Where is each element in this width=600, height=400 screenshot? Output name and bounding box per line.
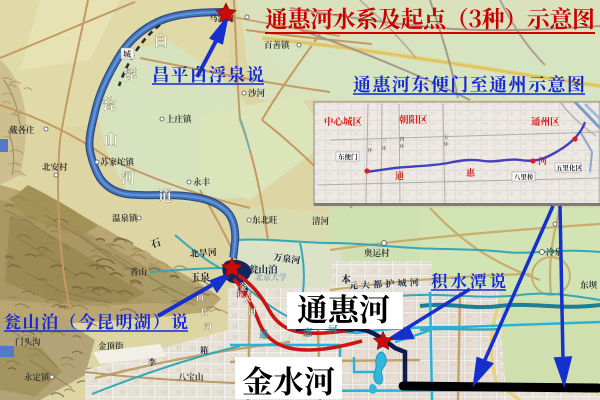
svg-text:朝阳区: 朝阳区 xyxy=(399,112,428,126)
svg-text:瓮山泊: 瓮山泊 xyxy=(249,262,278,276)
svg-text:奥运村: 奥运村 xyxy=(364,247,390,259)
svg-text:李: 李 xyxy=(148,357,156,368)
svg-text:百善镇: 百善镇 xyxy=(264,39,291,51)
svg-text:苏家坨镇: 苏家坨镇 xyxy=(100,156,136,168)
svg-text:八里桥: 八里桥 xyxy=(514,172,534,181)
svg-text:水: 水 xyxy=(243,294,251,305)
svg-text:白: 白 xyxy=(154,31,168,51)
svg-text:箱: 箱 xyxy=(200,345,208,356)
svg-text:香山: 香山 xyxy=(130,266,147,278)
svg-text:通州区: 通州区 xyxy=(531,114,560,128)
svg-text:清河: 清河 xyxy=(312,215,330,227)
svg-text:五环: 五环 xyxy=(442,134,450,148)
svg-text:东北旺: 东北旺 xyxy=(252,214,278,226)
svg-text:上庄镇: 上庄镇 xyxy=(166,113,193,125)
svg-text:惠: 惠 xyxy=(466,166,476,179)
svg-text:玉泉: 玉泉 xyxy=(190,269,210,284)
svg-text:八宝山: 八宝山 xyxy=(178,371,204,383)
svg-text:二环: 二环 xyxy=(366,140,374,154)
svg-text:戴各庄: 戴各庄 xyxy=(9,124,35,136)
svg-text:河: 河 xyxy=(121,168,135,188)
svg-text:通惠河水系及起点（3种）示意图: 通惠河水系及起点（3种）示意图 xyxy=(265,1,595,34)
svg-text:五里化区: 五里化区 xyxy=(556,163,583,172)
svg-text:河: 河 xyxy=(538,154,547,167)
svg-text:城: 城 xyxy=(123,49,131,60)
svg-text:通惠河: 通惠河 xyxy=(297,285,390,330)
svg-text:山: 山 xyxy=(104,130,118,150)
svg-text:东坝: 东坝 xyxy=(580,279,599,291)
svg-text:门头沟: 门头沟 xyxy=(15,336,41,348)
svg-text:惠: 惠 xyxy=(303,325,314,339)
svg-text:通: 通 xyxy=(395,169,404,182)
svg-text:四环: 四环 xyxy=(398,136,406,150)
svg-text:瓮山泊（今昆明湖）说: 瓮山泊（今昆明湖）说 xyxy=(4,308,188,333)
svg-text:通: 通 xyxy=(259,327,269,341)
svg-text:金水河: 金水河 xyxy=(242,357,335,400)
svg-text:三环: 三环 xyxy=(380,138,388,152)
svg-text:永丰: 永丰 xyxy=(193,176,211,188)
svg-text:长: 长 xyxy=(200,307,208,318)
svg-text:永定镇: 永定镇 xyxy=(24,371,51,383)
svg-text:昌平白浮泉说: 昌平白浮泉说 xyxy=(152,62,264,87)
svg-text:浮: 浮 xyxy=(123,65,137,85)
svg-text:温泉镇: 温泉镇 xyxy=(112,212,139,224)
svg-text:沙河: 沙河 xyxy=(248,87,266,99)
svg-text:河: 河 xyxy=(204,322,212,333)
svg-text:北安村: 北安村 xyxy=(42,161,68,173)
svg-text:河: 河 xyxy=(248,306,256,317)
svg-text:中心城区: 中心城区 xyxy=(324,114,363,128)
svg-text:瓮: 瓮 xyxy=(102,94,116,114)
svg-text:金: 金 xyxy=(239,282,247,293)
svg-text:道: 道 xyxy=(158,186,172,206)
svg-text:通惠河东便门至通州示意图: 通惠河东便门至通州示意图 xyxy=(353,71,585,97)
svg-text:东便门: 东便门 xyxy=(338,152,358,161)
svg-text:北旱河: 北旱河 xyxy=(189,245,217,260)
svg-text:河: 河 xyxy=(328,322,338,336)
svg-text:本: 本 xyxy=(341,271,351,286)
